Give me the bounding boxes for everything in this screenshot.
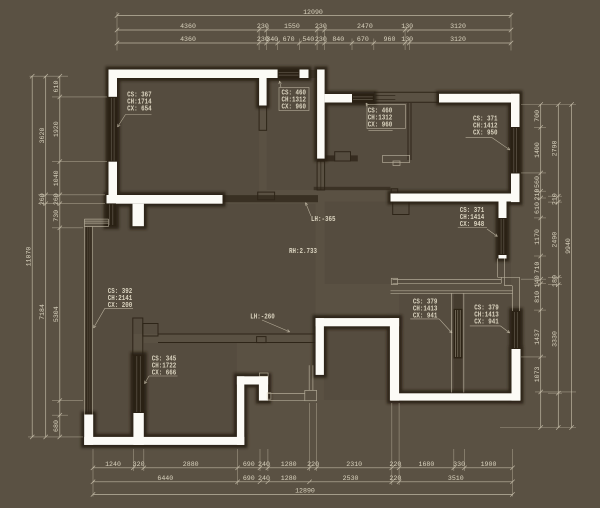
svg-text:690: 690 — [243, 461, 255, 468]
svg-text:1550: 1550 — [284, 23, 300, 30]
svg-text:4360: 4360 — [180, 36, 196, 43]
svg-text:180: 180 — [552, 275, 559, 287]
svg-text:CX: 200: CX: 200 — [108, 302, 133, 310]
svg-text:1170: 1170 — [534, 229, 541, 245]
svg-text:CX: 941: CX: 941 — [474, 319, 499, 327]
svg-text:330: 330 — [453, 461, 465, 468]
svg-text:1680: 1680 — [419, 461, 435, 468]
svg-text:2310: 2310 — [346, 461, 362, 468]
svg-text:2790: 2790 — [552, 140, 559, 156]
svg-text:2470: 2470 — [357, 23, 373, 30]
svg-text:230: 230 — [315, 36, 327, 43]
svg-text:220: 220 — [307, 461, 319, 468]
svg-text:RH:2.733: RH:2.733 — [289, 248, 317, 256]
svg-text:560: 560 — [534, 176, 541, 188]
svg-text:610: 610 — [53, 80, 60, 92]
svg-text:5304: 5304 — [53, 306, 60, 322]
svg-text:960: 960 — [384, 36, 396, 43]
svg-text:3620: 3620 — [39, 127, 46, 143]
svg-text:670: 670 — [283, 36, 295, 43]
svg-text:730: 730 — [53, 210, 60, 222]
svg-text:340: 340 — [266, 36, 278, 43]
svg-text:680: 680 — [53, 420, 60, 432]
svg-text:840: 840 — [332, 36, 344, 43]
svg-text:2880: 2880 — [183, 461, 199, 468]
svg-text:2490: 2490 — [552, 232, 559, 248]
svg-text:1240: 1240 — [105, 461, 121, 468]
svg-text:210: 210 — [552, 193, 559, 205]
svg-text:610: 610 — [534, 202, 541, 214]
svg-text:710: 710 — [534, 261, 541, 273]
svg-text:CX: 941: CX: 941 — [413, 313, 438, 321]
svg-text:220: 220 — [389, 475, 401, 482]
svg-text:240: 240 — [258, 461, 270, 468]
svg-text:3510: 3510 — [448, 475, 464, 482]
svg-text:260: 260 — [53, 193, 60, 205]
svg-text:1280: 1280 — [281, 461, 297, 468]
svg-text:220: 220 — [389, 461, 401, 468]
svg-text:LH:-365: LH:-365 — [311, 216, 336, 224]
svg-text:320: 320 — [133, 461, 145, 468]
svg-text:670: 670 — [357, 36, 369, 43]
svg-text:210: 210 — [534, 188, 541, 200]
svg-text:700: 700 — [534, 110, 541, 122]
svg-text:12890: 12890 — [295, 488, 315, 495]
svg-text:7184: 7184 — [39, 304, 46, 320]
svg-text:1437: 1437 — [534, 329, 541, 345]
svg-text:260: 260 — [39, 193, 46, 205]
svg-text:4360: 4360 — [180, 23, 196, 30]
svg-text:6440: 6440 — [157, 475, 173, 482]
svg-text:130: 130 — [401, 36, 413, 43]
svg-text:1900: 1900 — [481, 461, 497, 468]
svg-text:230: 230 — [257, 23, 269, 30]
svg-text:1040: 1040 — [53, 170, 60, 186]
svg-text:CX: 654: CX: 654 — [127, 106, 152, 114]
svg-text:3120: 3120 — [450, 36, 466, 43]
svg-text:230: 230 — [315, 23, 327, 30]
svg-text:1280: 1280 — [281, 475, 297, 482]
svg-text:240: 240 — [258, 475, 270, 482]
svg-text:12090: 12090 — [303, 9, 323, 16]
svg-text:CX: 950: CX: 950 — [473, 130, 498, 138]
svg-text:9940: 9940 — [565, 238, 572, 254]
svg-text:140: 140 — [534, 275, 541, 287]
svg-text:130: 130 — [401, 23, 413, 30]
svg-text:1920: 1920 — [53, 121, 60, 137]
svg-text:690: 690 — [243, 475, 255, 482]
svg-text:2530: 2530 — [343, 475, 359, 482]
svg-text:11070: 11070 — [25, 246, 32, 266]
svg-text:1073: 1073 — [534, 366, 541, 382]
svg-text:1400: 1400 — [534, 142, 541, 158]
svg-text:3120: 3120 — [450, 23, 466, 30]
svg-text:540: 540 — [302, 36, 314, 43]
svg-text:3330: 3330 — [552, 331, 559, 347]
svg-text:810: 810 — [534, 291, 541, 303]
